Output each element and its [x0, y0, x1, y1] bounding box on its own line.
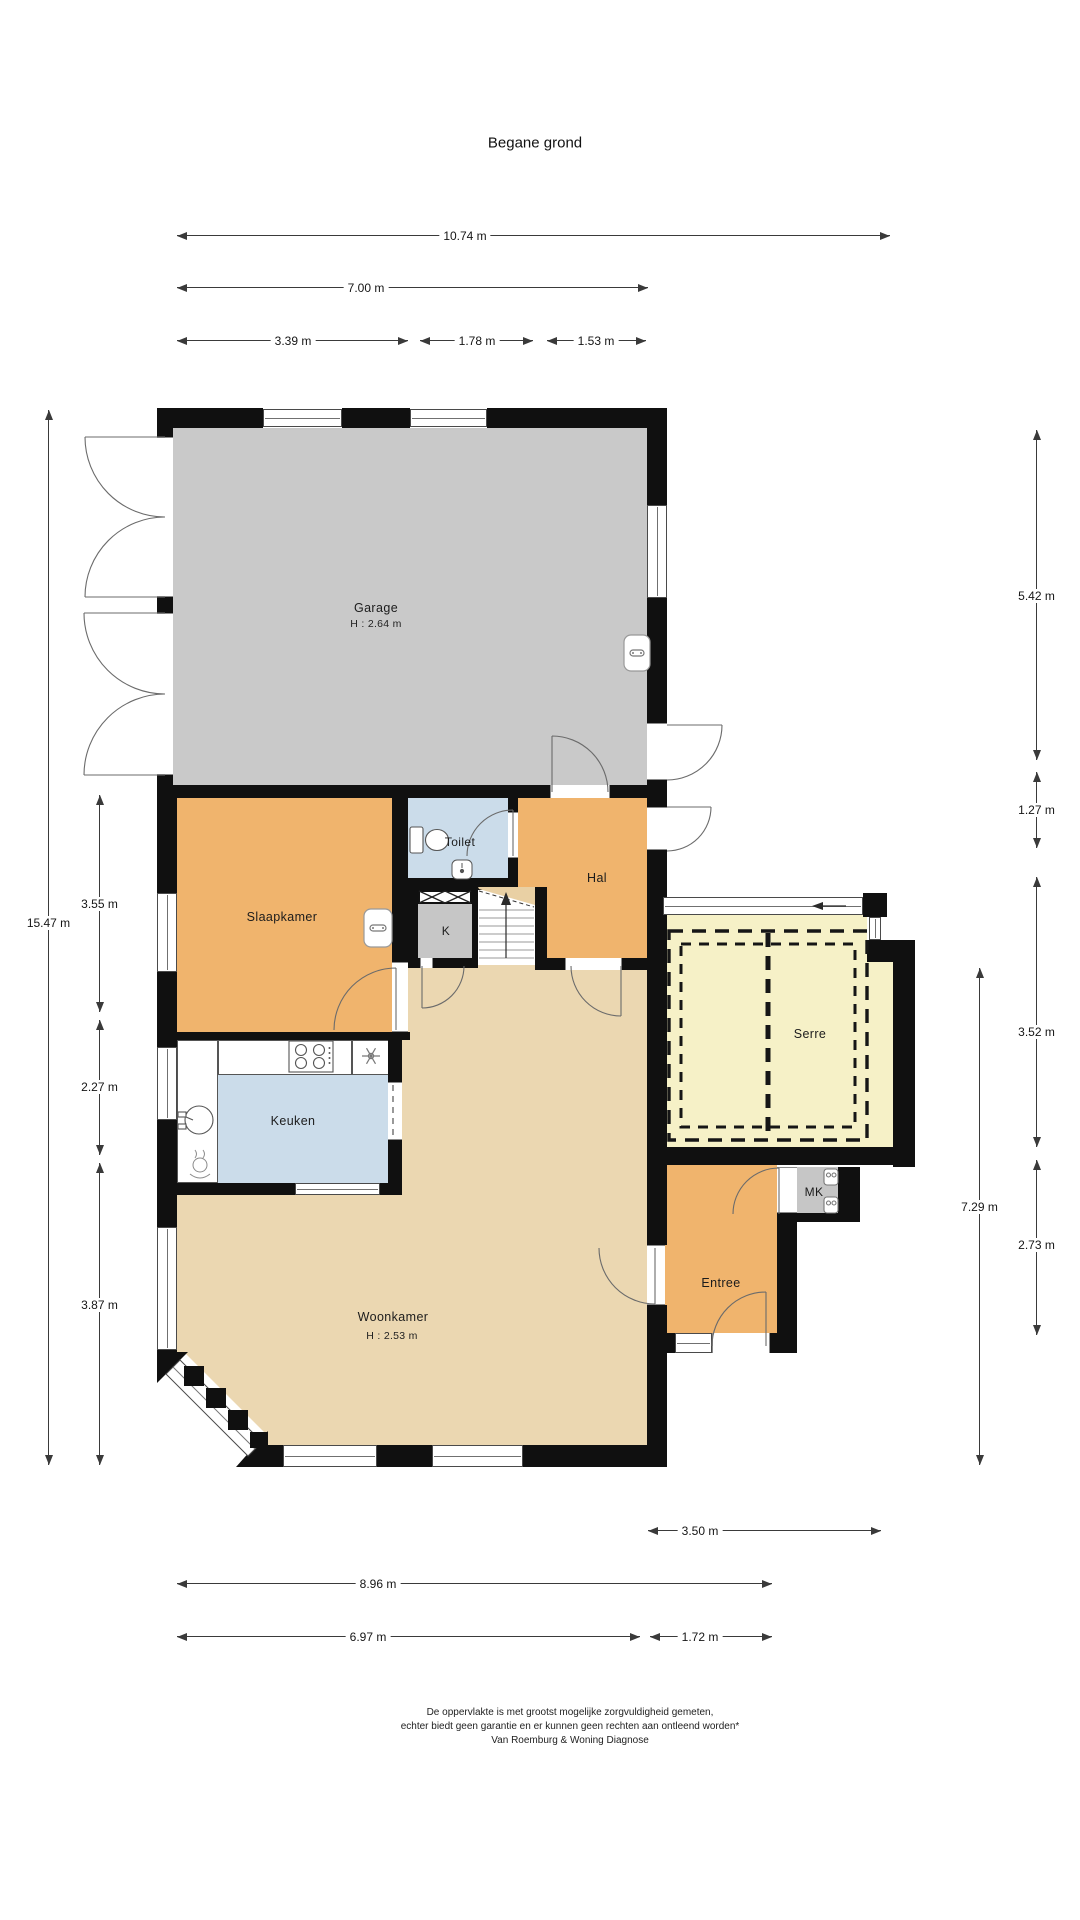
dimension-left-3-label: 3.87 m — [77, 1298, 122, 1312]
dimension-top-0 — [177, 235, 890, 236]
dimension-arrow-up — [1033, 430, 1041, 440]
wall-segment — [408, 878, 518, 890]
dimension-left-0 — [48, 410, 49, 1465]
wall-segment — [157, 1032, 410, 1040]
room-serre-upper — [663, 915, 867, 960]
dimension-top-3-label: 1.78 m — [455, 334, 500, 348]
footer-company: Van Roemburg & Woning Diagnose — [270, 1734, 870, 1748]
door-opening — [565, 958, 622, 970]
door-opening — [647, 807, 667, 850]
door-opening — [712, 1333, 770, 1353]
door-opening — [157, 437, 173, 597]
dimension-top-2-label: 3.39 m — [271, 334, 316, 348]
window — [869, 917, 881, 940]
wall-segment — [535, 958, 565, 970]
wall-segment — [893, 962, 915, 1167]
window — [675, 1333, 712, 1353]
door-opening — [157, 613, 173, 775]
dimension-bottom-1 — [177, 1583, 772, 1584]
room-keuken — [218, 1075, 388, 1183]
window — [157, 1227, 177, 1350]
dimension-arrow-down — [96, 1455, 104, 1465]
wall-segment — [508, 858, 518, 880]
room-entree — [665, 1165, 777, 1333]
room-serre — [663, 960, 893, 1147]
dimension-bottom-2 — [177, 1636, 640, 1637]
shaft-hatch-box — [418, 890, 472, 904]
label-meterkast: MK — [805, 1185, 824, 1199]
dimension-right-3-label: 7.29 m — [957, 1200, 1002, 1214]
wall-segment — [867, 940, 915, 962]
wall-segment — [770, 1333, 797, 1353]
wall-segment — [647, 850, 667, 895]
label-garage: Garage — [354, 601, 398, 615]
wall-segment — [377, 1445, 432, 1467]
door-opening — [388, 1082, 402, 1140]
dimension-bottom-0-label: 3.50 m — [678, 1524, 723, 1538]
wall-segment — [157, 972, 177, 1047]
wall-segment — [647, 1333, 675, 1353]
dimension-right-2-label: 3.52 m — [1014, 1025, 1059, 1039]
dimension-arrow-left — [177, 232, 187, 240]
wall-segment — [647, 895, 667, 1245]
kitchen-counter-left — [177, 1040, 218, 1183]
wall-segment — [157, 1350, 177, 1362]
dimension-arrow-up — [1033, 877, 1041, 887]
dimension-arrow-left — [177, 1580, 187, 1588]
wall-segment — [487, 408, 667, 428]
dimension-arrow-up — [976, 968, 984, 978]
window — [410, 409, 487, 427]
dimension-arrow-left — [547, 337, 557, 345]
dimension-arrow-left — [420, 337, 430, 345]
label-entree: Entree — [701, 1276, 740, 1290]
door-opening — [508, 812, 518, 858]
wall-segment — [647, 1147, 915, 1165]
dimension-arrow-down — [96, 1145, 104, 1155]
dimension-left-1-label: 3.55 m — [77, 897, 122, 911]
wall-segment — [157, 1183, 295, 1195]
window — [432, 1445, 523, 1467]
wall-segment — [777, 1213, 860, 1222]
door-opening — [392, 962, 408, 1032]
wall-segment — [433, 958, 478, 968]
dimension-arrow-right — [630, 1633, 640, 1641]
footer-disclaimer-1: De oppervlakte is met grootst mogelijke … — [270, 1706, 870, 1720]
dimension-arrow-up — [96, 1020, 104, 1030]
label-garage-height: H : 2.64 m — [350, 618, 401, 630]
dimension-right-2 — [1036, 877, 1037, 1147]
wall-segment — [610, 785, 667, 798]
wall-segment — [408, 878, 418, 968]
dimension-arrow-down — [976, 1455, 984, 1465]
dimension-top-1 — [177, 287, 648, 288]
window — [157, 893, 177, 972]
wall-segment — [392, 798, 408, 962]
wall-segment — [342, 408, 410, 428]
dimension-arrow-up — [45, 410, 53, 420]
dimension-right-4-label: 2.73 m — [1014, 1238, 1059, 1252]
dimension-bottom-1-label: 8.96 m — [356, 1577, 401, 1591]
dimension-arrow-left — [650, 1633, 660, 1641]
dimension-arrow-right — [762, 1633, 772, 1641]
dimension-bottom-3-label: 1.72 m — [678, 1630, 723, 1644]
dimension-right-0-label: 5.42 m — [1014, 589, 1059, 603]
wall-segment — [647, 598, 667, 723]
window — [157, 1047, 177, 1120]
window — [295, 1183, 380, 1195]
page-title: Begane grond — [488, 135, 582, 152]
label-slaapkamer: Slaapkamer — [247, 910, 318, 924]
dimension-arrow-right — [762, 1580, 772, 1588]
door-opening — [647, 1245, 665, 1305]
garage-door-swing — [85, 437, 165, 517]
dimension-left-3 — [99, 1163, 100, 1465]
dimension-arrow-up — [1033, 1160, 1041, 1170]
dimension-top-0-label: 10.74 m — [439, 229, 490, 243]
wall-segment — [157, 428, 173, 437]
wall-segment — [863, 893, 887, 917]
label-kast: K — [442, 924, 450, 938]
dimension-arrow-down — [45, 1455, 53, 1465]
label-keuken: Keuken — [271, 1114, 316, 1128]
door-opening — [420, 958, 433, 968]
window — [283, 1445, 377, 1467]
dimension-arrow-left — [177, 1633, 187, 1641]
dimension-arrow-down — [96, 1002, 104, 1012]
window — [647, 505, 667, 598]
wall-segment — [250, 1445, 283, 1467]
dimension-arrow-right — [398, 337, 408, 345]
dimension-arrow-right — [523, 337, 533, 345]
label-hal: Hal — [587, 871, 607, 885]
label-woonkamer-height: H : 2.53 m — [366, 1330, 417, 1342]
label-toilet: Toilet — [445, 835, 475, 849]
wall-segment — [388, 1040, 402, 1082]
dimension-arrow-down — [1033, 838, 1041, 848]
kitchen-counter-top — [218, 1040, 352, 1075]
wall-segment — [523, 1445, 667, 1467]
dimension-arrow-down — [1033, 750, 1041, 760]
dimension-left-2-label: 2.27 m — [77, 1080, 122, 1094]
room-hal-lower — [547, 887, 647, 958]
wall-segment — [157, 785, 550, 798]
dimension-arrow-left — [177, 284, 187, 292]
room-hal — [518, 798, 647, 887]
dimension-arrow-right — [638, 284, 648, 292]
dimension-top-4-label: 1.53 m — [574, 334, 619, 348]
dimension-right-1-label: 1.27 m — [1014, 803, 1059, 817]
window — [263, 409, 342, 427]
kitchen-extractor-cell — [352, 1040, 390, 1075]
door-opening — [777, 1167, 797, 1213]
wall-segment — [157, 408, 263, 428]
wall-segment — [408, 958, 420, 968]
wall-segment — [472, 878, 478, 968]
wall-segment — [380, 1183, 402, 1195]
dimension-arrow-up — [1033, 772, 1041, 782]
room-garage — [173, 428, 647, 785]
wall-segment — [508, 798, 518, 812]
dimension-arrow-down — [1033, 1137, 1041, 1147]
wall-segment — [157, 798, 177, 893]
dimension-arrow-down — [1033, 1325, 1041, 1335]
dimension-right-3 — [979, 968, 980, 1465]
footer-disclaimer-2: echter biedt geen garantie en er kunnen … — [270, 1720, 870, 1734]
label-serre: Serre — [794, 1027, 827, 1041]
door-opening — [550, 785, 610, 798]
dimension-arrow-left — [648, 1527, 658, 1535]
dimension-bottom-2-label: 6.97 m — [346, 1630, 391, 1644]
dimension-left-0-label: 15.47 m — [23, 916, 74, 930]
dimension-arrow-right — [636, 337, 646, 345]
door-opening — [647, 723, 667, 780]
dimension-arrow-right — [880, 232, 890, 240]
wall-segment — [647, 1305, 667, 1467]
label-woonkamer: Woonkamer — [358, 1310, 429, 1324]
stairs-area — [478, 887, 535, 965]
dimension-arrow-up — [96, 1163, 104, 1173]
dimension-top-1-label: 7.00 m — [344, 281, 389, 295]
wall-segment — [647, 428, 667, 505]
wall-segment — [157, 1120, 177, 1227]
garden-door-swing — [667, 725, 722, 780]
dimension-arrow-up — [96, 795, 104, 805]
dimension-arrow-right — [871, 1527, 881, 1535]
window — [663, 897, 863, 915]
dimension-arrow-left — [177, 337, 187, 345]
wall-segment — [157, 597, 173, 613]
floorplan-page: Begane grond — [0, 0, 1080, 1920]
